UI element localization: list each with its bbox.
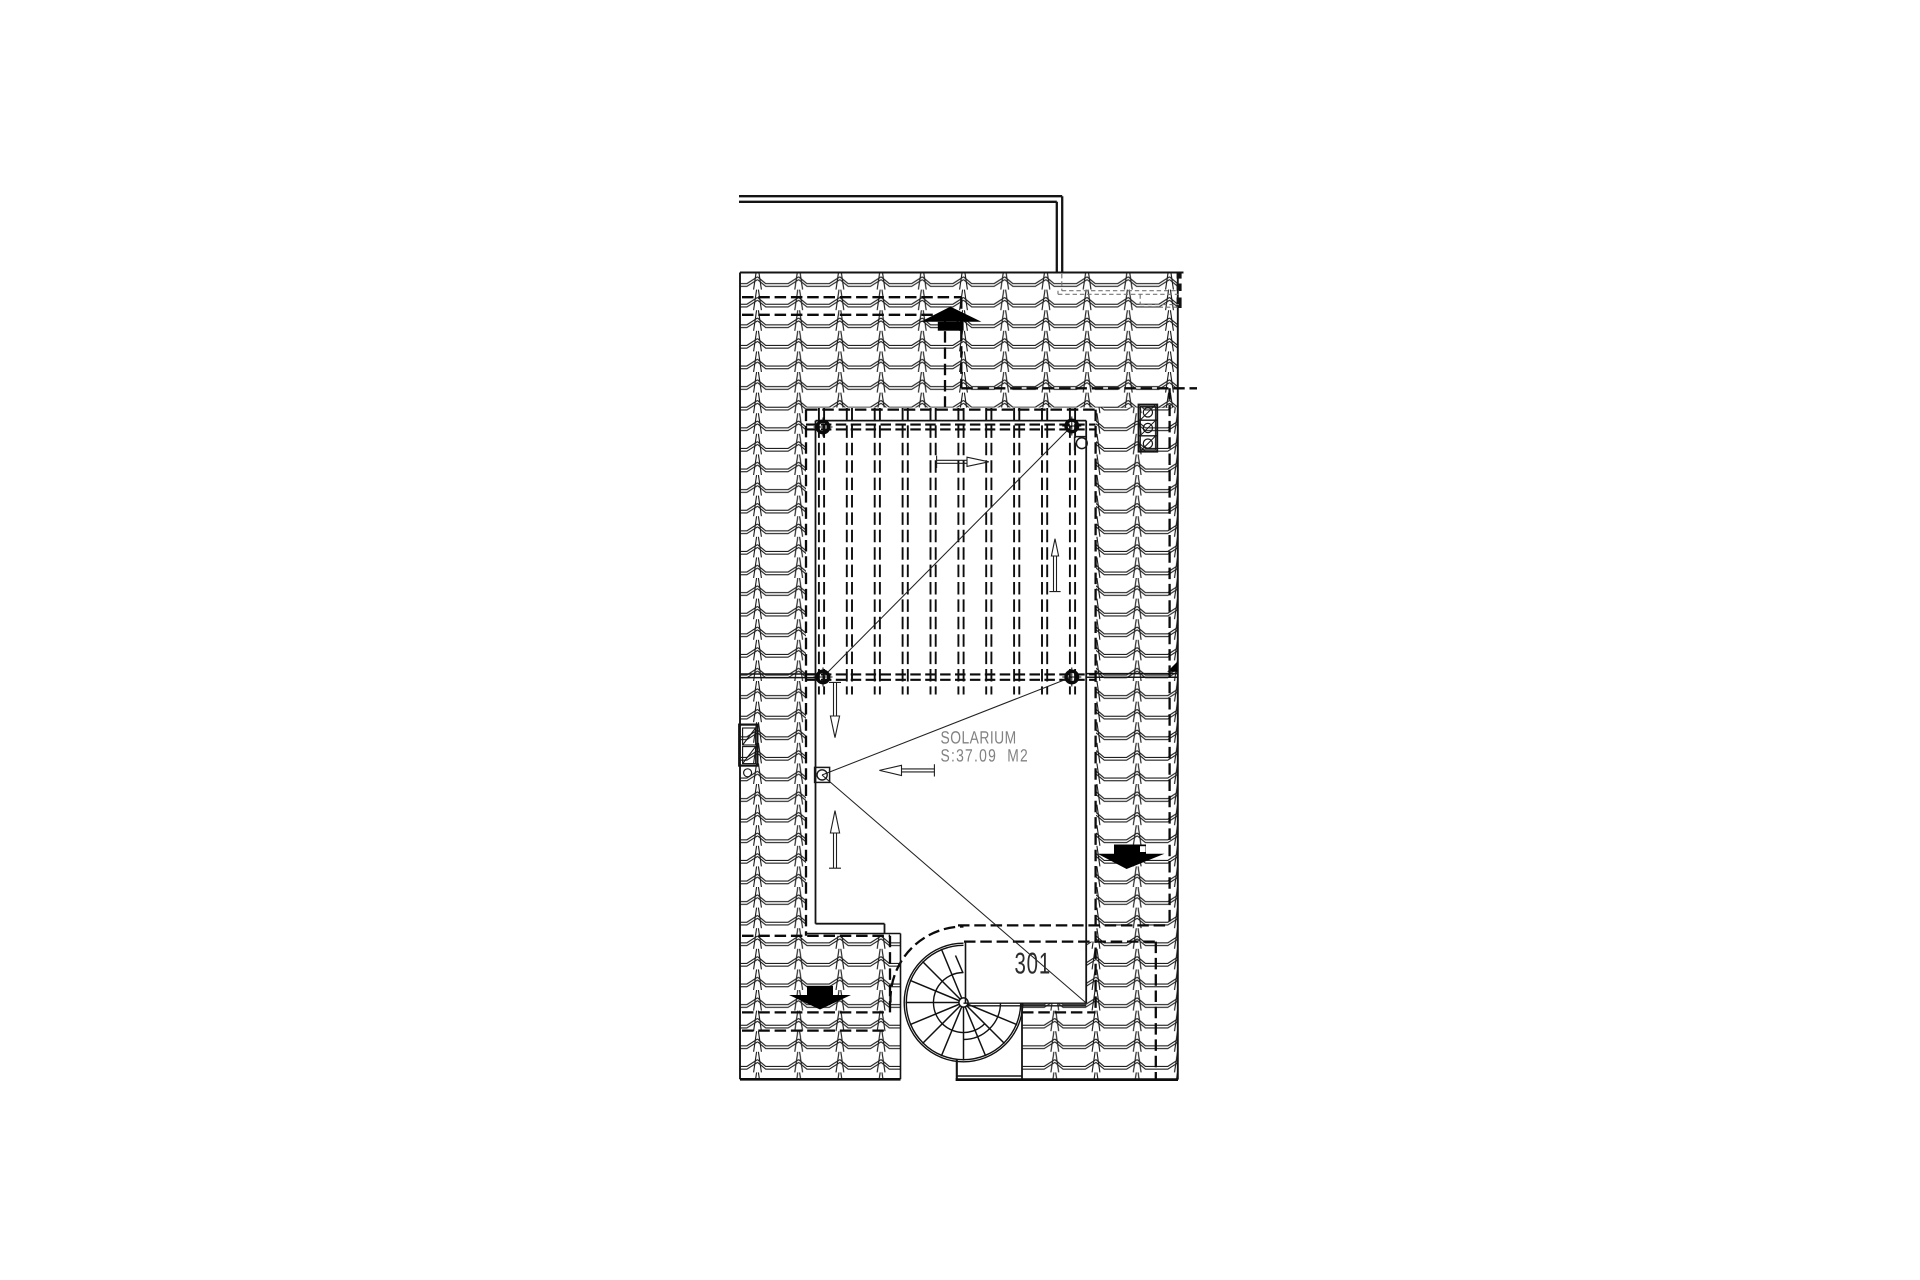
svg-text:SOLARIUM: SOLARIUM — [941, 728, 1017, 748]
svg-text:301: 301 — [1015, 948, 1051, 981]
svg-text:S:37.09 M2: S:37.09 M2 — [941, 746, 1030, 766]
